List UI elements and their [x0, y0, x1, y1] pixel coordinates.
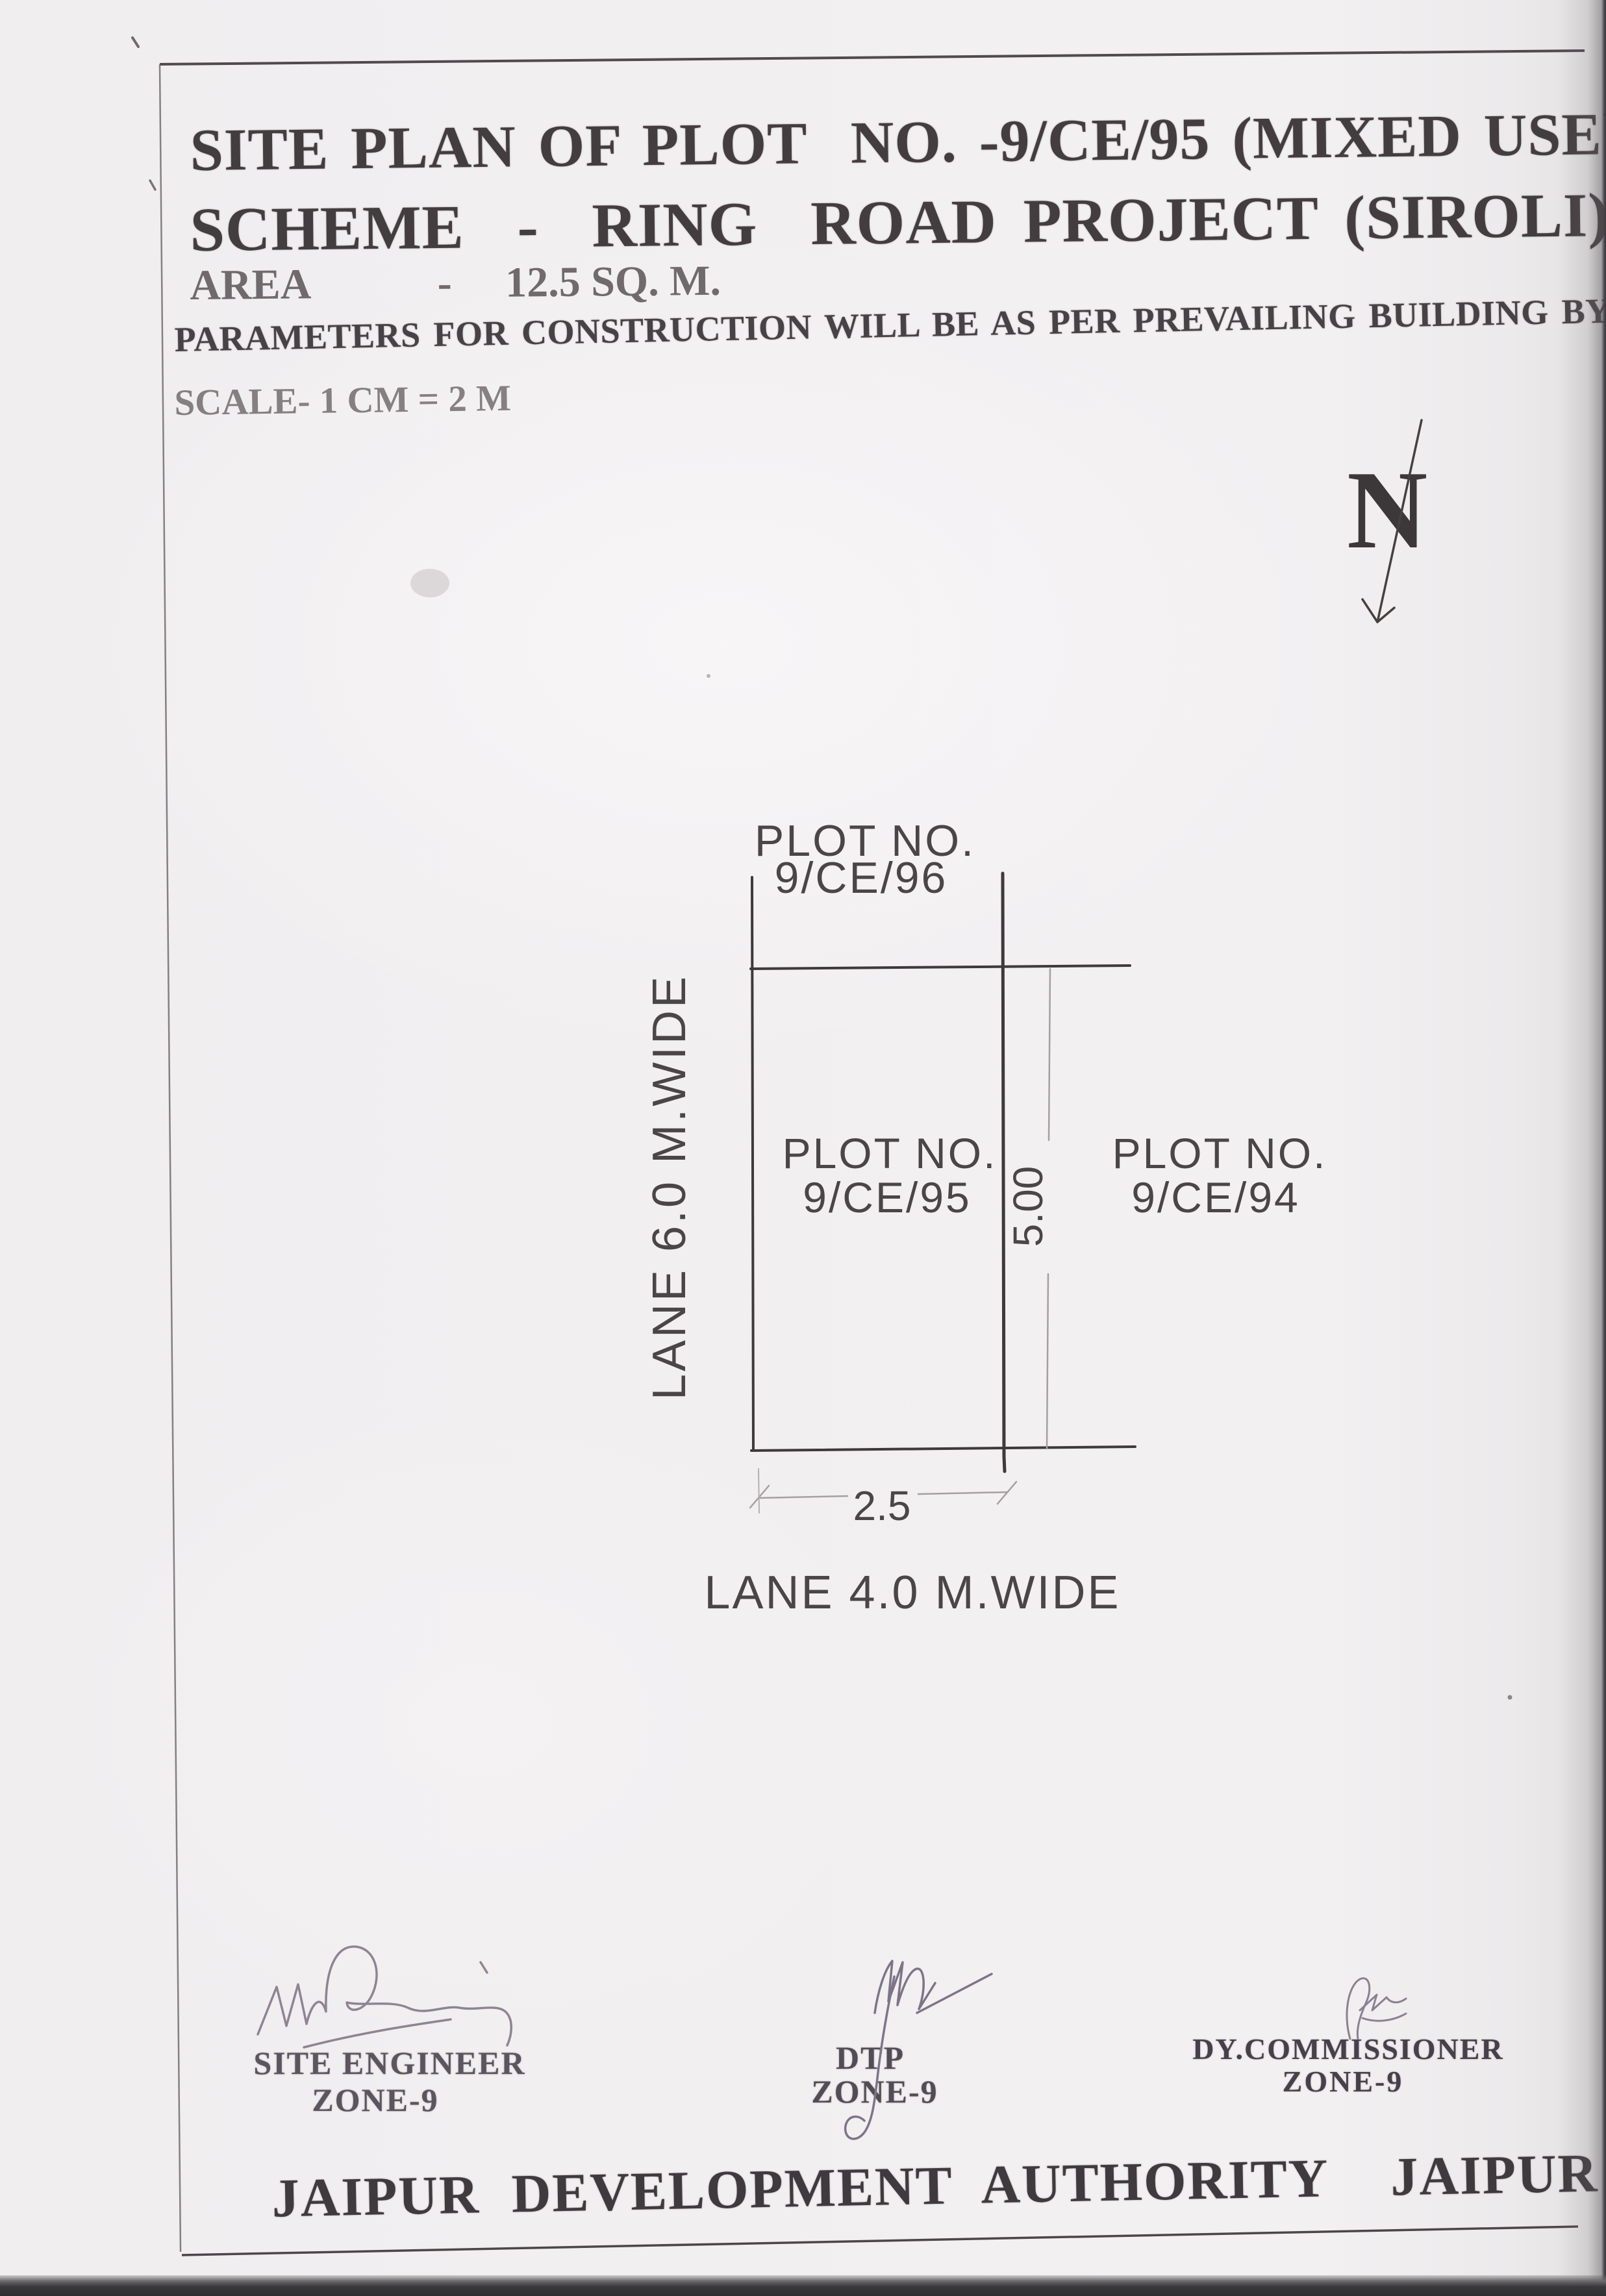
scan-edge-right: [1558, 0, 1606, 2296]
width-dim-line-left: [759, 1496, 847, 1498]
speck-1: [132, 38, 138, 47]
width-dimension-value: 2.5: [853, 1482, 911, 1530]
height-dim-line-upper: [1049, 969, 1050, 1140]
scale-note: SCALE- 1 CM = 2 M: [174, 377, 511, 424]
height-dimension-value: 5.00: [1004, 1166, 1052, 1247]
lane-left-label: LANE 6.0 M.WIDE: [643, 974, 696, 1400]
authority-title: JAIPUR DEVELOPMENT AUTHORITY JAIPUR: [271, 2141, 1599, 2230]
scanner-bar-bottom: [0, 2275, 1606, 2296]
speck-2: [150, 181, 155, 190]
plot-top-edge: [751, 966, 1130, 969]
plot-right-label-line2: 9/CE/94: [1131, 1173, 1299, 1222]
dy-commissioner-role: DY.COMMISSIONER: [1192, 2032, 1503, 2066]
plot-bottom-edge: [751, 1447, 1135, 1451]
speck-4: [707, 674, 710, 678]
dtp-zone: ZONE-9: [811, 2073, 938, 2110]
north-letter: N: [1347, 455, 1427, 566]
scanned-site-plan-page: SITE PLAN OF PLOT NO. -9/CE/95 (MIXED US…: [0, 0, 1606, 2296]
north-arrow-head: [1362, 599, 1394, 622]
site-engineer-signature: [258, 1947, 511, 2047]
lane-bottom-label: LANE 4.0 M.WIDE: [704, 1566, 1120, 1619]
faint-blot: [410, 569, 449, 597]
plot-center-label-line1: PLOT NO.: [783, 1129, 997, 1178]
plot-left-edge: [752, 877, 753, 1450]
page-border-top: [160, 51, 1585, 64]
dy-commissioner-zone: ZONE-9: [1283, 2064, 1404, 2099]
site-engineer-role: SITE ENGINEER: [253, 2044, 525, 2082]
page-title: SITE PLAN OF PLOT NO. -9/CE/95 (MIXED US…: [190, 99, 1606, 184]
speck-3: [1508, 1695, 1512, 1700]
width-dim-tick-right: [997, 1482, 1016, 1504]
area-line: AREA - 12.5 SQ. M.: [190, 256, 721, 310]
site-engineer-zone: ZONE-9: [312, 2081, 438, 2119]
plot-right-label-line1: PLOT NO.: [1112, 1129, 1327, 1178]
plot-center-label-line2: 9/CE/95: [803, 1173, 971, 1222]
dy-commissioner-signature: [1347, 1978, 1406, 2039]
plot-top-label-line2: 9/CE/96: [775, 853, 948, 903]
footer-rule: [182, 2227, 1578, 2255]
dtp-role: DTP: [836, 2039, 905, 2077]
height-dim-line-lower: [1047, 1274, 1048, 1449]
width-dim-line-right: [918, 1492, 1007, 1494]
scheme-title: SCHEME - RING ROAD PROJECT (SIROLI): [190, 179, 1606, 266]
width-dim-tick-left: [750, 1486, 769, 1508]
width-dim-extension-left: [759, 1469, 759, 1513]
